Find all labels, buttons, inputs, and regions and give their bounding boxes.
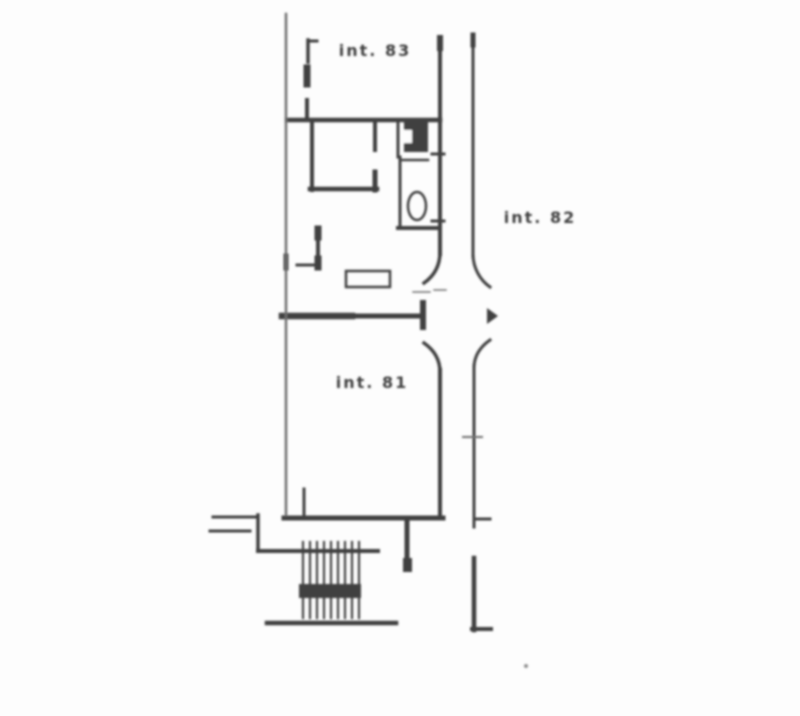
plan-walls xyxy=(210,14,491,630)
scan-speck xyxy=(524,664,528,668)
stair-dark-band xyxy=(299,584,361,598)
landing-flare-bottom-right xyxy=(474,340,490,368)
door-leaf-rect xyxy=(346,271,390,287)
landing-arrow-right xyxy=(487,308,498,324)
plan-labels: int. 83 int. 82 int. 81 xyxy=(336,41,576,392)
landing-flare-top-right xyxy=(473,254,490,287)
unit-label-top: int. 83 xyxy=(339,41,411,60)
unit-label-lower: int. 81 xyxy=(336,373,408,392)
wc-fixture xyxy=(408,192,426,220)
floor-plan-drawing: int. 83 int. 82 int. 81 xyxy=(0,0,800,716)
unit-label-mid-right: int. 82 xyxy=(504,208,576,227)
scanned-floor-plan-page: int. 83 int. 82 int. 81 xyxy=(0,0,800,716)
stub-end-blob xyxy=(403,558,412,572)
landing-flare-bottom-left xyxy=(424,343,440,372)
shaft-white-notch xyxy=(404,130,412,143)
landing-flare-top-left xyxy=(424,252,440,283)
plan-ink-layer: int. 83 int. 82 int. 81 xyxy=(210,14,576,668)
